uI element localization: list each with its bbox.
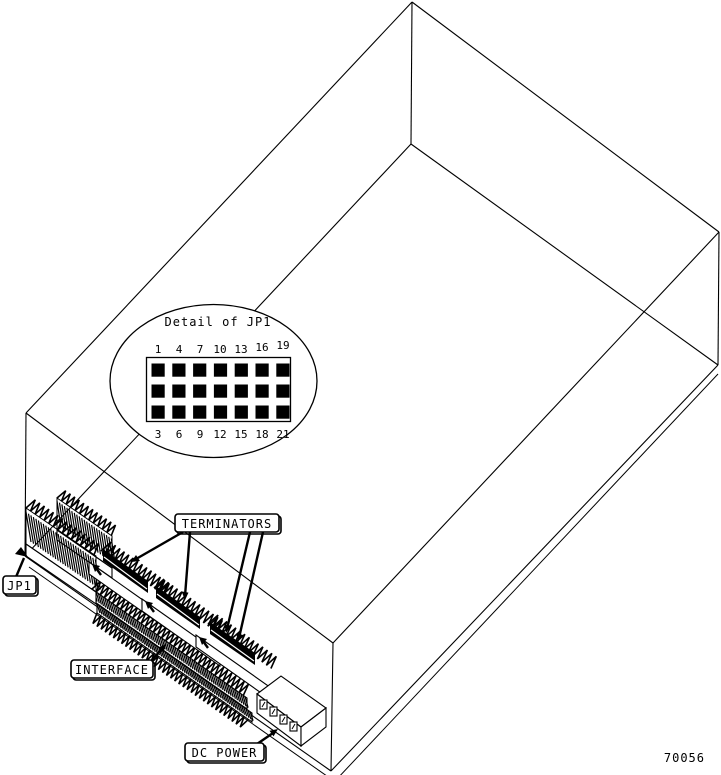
detail-title: Detail of JP1 <box>165 315 272 329</box>
jumper-pin-square <box>256 406 269 419</box>
pin-number: 7 <box>197 343 204 356</box>
pin-number: 21 <box>276 428 289 441</box>
jumper-pin-square <box>235 385 248 398</box>
jp1-detail-callout: Detail of JP1 1 4 7 10 13 16 19 3 6 9 12… <box>110 305 317 458</box>
interface-label-text: INTERFACE <box>75 663 149 677</box>
jp1-leader <box>16 558 24 577</box>
pin-number: 1 <box>155 343 162 356</box>
terminators-leader-4 <box>239 532 263 638</box>
jumper-pin-square <box>152 385 165 398</box>
pin-number: 3 <box>155 428 162 441</box>
edge-bottom-back-right <box>411 144 718 365</box>
pin-number: 19 <box>276 339 289 352</box>
jumper-pin-square <box>152 406 165 419</box>
jumper-pin-square <box>276 364 289 377</box>
dc-power-label: DC POWER <box>185 729 278 763</box>
pin-number: 6 <box>176 428 183 441</box>
jumper-pin-square <box>256 364 269 377</box>
pin-number: 12 <box>213 428 226 441</box>
pin-number: 16 <box>255 341 268 354</box>
jumper-pin-square <box>172 364 185 377</box>
edge-top-back-right <box>412 2 719 232</box>
dc-power-label-text: DC POWER <box>192 746 258 760</box>
pin-number: 15 <box>234 428 247 441</box>
pin-number: 18 <box>255 428 268 441</box>
edge-vertical-right <box>718 232 719 365</box>
figure-canvas: Detail of JP1 1 4 7 10 13 16 19 3 6 9 12… <box>0 0 721 775</box>
jumper-pin-square <box>235 364 248 377</box>
edge-bottom-front-right <box>331 365 718 771</box>
pin-number: 4 <box>176 343 183 356</box>
terminators-leader-1 <box>136 532 183 559</box>
jumper-pin-square <box>256 385 269 398</box>
jumper-pin-square <box>214 406 227 419</box>
terminators-leader-3 <box>227 532 250 629</box>
figure-number: 70056 <box>664 751 705 765</box>
pin-number: 13 <box>234 343 247 356</box>
jumper-pin-square <box>214 385 227 398</box>
jumper-pin-square <box>214 364 227 377</box>
jumper-pin-square <box>276 406 289 419</box>
edge-vertical-front <box>331 643 333 771</box>
edge-top-front-right <box>333 232 719 643</box>
jumper-pin-square <box>276 385 289 398</box>
jumper-pin-square <box>152 364 165 377</box>
pin-number: 9 <box>197 428 204 441</box>
terminators-leader-2 <box>185 532 190 596</box>
jumper-pin-square <box>193 364 206 377</box>
jumper-pin-square <box>172 406 185 419</box>
jp1-label-text: JP1 <box>7 579 32 593</box>
drive-diagram: Detail of JP1 1 4 7 10 13 16 19 3 6 9 12… <box>0 0 721 775</box>
jumper-pin-square <box>193 406 206 419</box>
base-flange-right <box>336 374 718 775</box>
jumper-pin-square <box>172 385 185 398</box>
terminators-label-text: TERMINATORS <box>182 517 272 531</box>
jumper-pin-square <box>193 385 206 398</box>
jumper-pin-square <box>235 406 248 419</box>
edge-vertical-back <box>411 2 412 144</box>
pin-number: 10 <box>213 343 226 356</box>
